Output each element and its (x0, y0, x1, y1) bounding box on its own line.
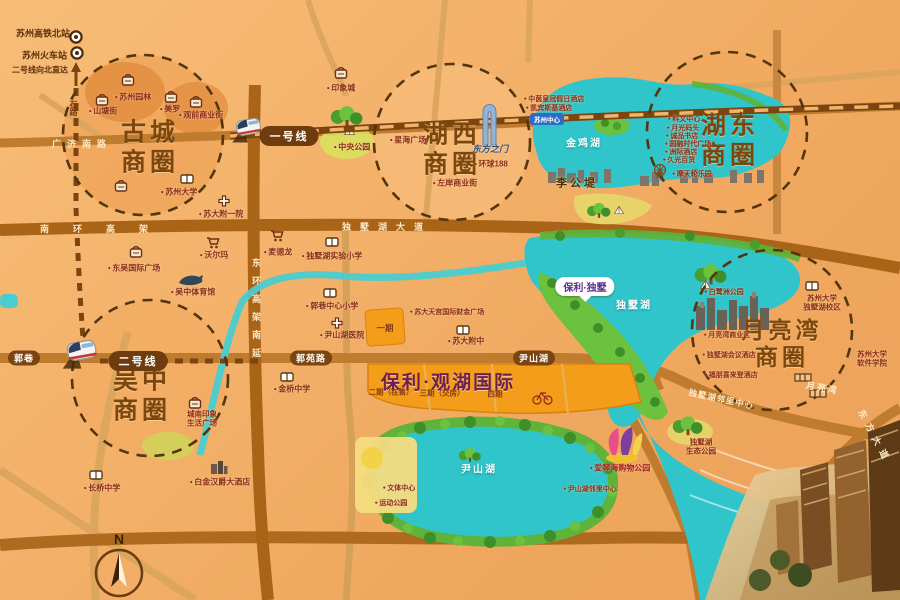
school-book-icon (181, 175, 193, 183)
line2-north-note: 二号线向北直达 (12, 65, 68, 76)
poi-guoxiang-primary: 郭巷中心小学 (306, 301, 358, 310)
poi-sports-park: 运动公园 (375, 500, 407, 508)
line2-train-icon (60, 336, 100, 372)
poi-dongwu-plaza: 东吴国际广场 (108, 263, 160, 272)
poi-harmony-times-square: 圆融时代广场 (665, 141, 711, 149)
poi-intercontinental: 洲际酒店 (665, 149, 697, 157)
north-arrow-line2 (71, 62, 81, 72)
poi-platinum-hanjue-hotel: 白金汉爵大酒店 (190, 477, 250, 486)
poi-suda-middle: 苏大附中 (448, 336, 484, 345)
poi-suzhou-center: 苏州中心 (530, 113, 564, 125)
hospital-cross-icon (219, 196, 229, 206)
poi-culture-sports-center: 文体中心 (383, 485, 415, 493)
school-book-icon (326, 238, 338, 246)
poi-yinxiang-city: 印象城 (327, 83, 355, 92)
poi-suda-dushu-campus: 苏州大学独墅湖校区 (803, 294, 841, 311)
road-dushuhudadao: 独墅湖大道 (342, 220, 432, 233)
poi-shantang-street: 山塘街 (89, 106, 117, 115)
poi-caijin-plaza: 苏大天宫国际财金广场 (410, 309, 484, 317)
metro-station-icon (71, 47, 82, 58)
compass: N (93, 531, 145, 600)
road-yinshanhu-pill: 尹山湖 (513, 351, 555, 366)
poi-global-188: 环球188 (474, 159, 508, 168)
shopping-cart-icon (271, 231, 283, 241)
poly-dushu-pin: 保利·独墅 (555, 277, 614, 296)
poi-guanqian-street: 观前商业街 (179, 110, 223, 119)
road-guoxiang-pill: 郭巷 (8, 351, 40, 366)
poi-ferris-park: 摩天轮乐园 (672, 171, 711, 179)
hospital-cross-icon (332, 318, 342, 328)
poi-kempinski: 凯宾斯基酒店 (526, 105, 572, 113)
real-estate-location-map: 苏州高铁北站 苏州火车站 二号线向北直达 一号线 二号线 石路 古城商圈 湖西商… (0, 0, 900, 600)
hotel-buildings-icon (211, 461, 228, 474)
poi-eslite-bookstore: 诚品书店 (666, 133, 698, 141)
poi-central-park: 中央公园 (334, 142, 370, 151)
poi-kewen-center: 科文中心 (668, 116, 700, 124)
road-donghuannanyan: 东环高架南延 (250, 258, 263, 366)
line2-pill: 二号线 (109, 351, 168, 371)
central-park-trees-icon (331, 106, 363, 126)
yueliangwan-circle-title: 月亮湾商圈 (742, 317, 823, 371)
school-book-icon (457, 326, 469, 334)
poi-metro-market: 麦德龙 (264, 247, 292, 256)
metro-station-icon (70, 31, 81, 42)
line1-pill: 一号线 (260, 126, 319, 146)
shop-bag-icon (131, 247, 142, 257)
road-guangjinanlu: 广济南路 (52, 137, 112, 150)
poi-gate-of-orient: 东方之门 (472, 144, 508, 154)
compass-rose-icon (93, 547, 145, 599)
poi-aegean-mall: 爱琴海购物公园 (590, 463, 650, 472)
poi-yinshan-neighborhood: 尹山湖邻里中心 (563, 486, 616, 494)
school-book-icon (90, 471, 102, 479)
poi-jinqiao-middle: 金桥中学 (274, 384, 310, 393)
road-guoyuanlu-pill: 郭苑路 (290, 351, 332, 366)
poi-meiluo: 美罗 (160, 104, 180, 113)
phase4-label: 四期 (488, 389, 503, 400)
poi-wuzhong-stadium: 吴中体育馆 (171, 287, 215, 296)
poi-eco-park: 独墅湖生态公园 (686, 438, 716, 455)
poi-suda-hospital: 苏大附一院 (199, 209, 243, 218)
poi-changqiao-middle: 长桥中学 (84, 483, 120, 492)
poi-dushu-primary: 独墅湖实验小学 (302, 251, 362, 260)
compass-n-label: N (93, 531, 145, 547)
poi-jiuguang: 久光百货 (663, 157, 695, 165)
station-north-label: 苏州高铁北站 (16, 27, 70, 40)
poi-moonlight-wharf: 月光码头 (667, 125, 699, 133)
ligongdi-label: 李公堤 (556, 178, 598, 191)
school-book-icon (281, 373, 293, 381)
poi-walmart: 沃尔玛 (200, 250, 228, 259)
poi-suda-software: 苏州大学软件学院 (857, 350, 887, 367)
phase1-label: 一期 (376, 322, 393, 334)
station-main-label: 苏州火车站 (22, 49, 67, 62)
phase2-label: 二期（在售） (369, 387, 414, 398)
stadium-whale-icon (179, 275, 203, 285)
eco-park-trees-icon (673, 416, 703, 435)
poi-chengnan-plaza: 城南印象生活广场 (187, 410, 217, 427)
poi-four-points-hotel: 福朋喜来登酒店 (704, 372, 757, 380)
school-book-icon (324, 289, 336, 297)
poi-left-bank-street: 左岸商业街 (433, 178, 477, 187)
jinji-lake-label: 金鸡湖 (566, 135, 602, 150)
gucheng-circle-title: 古城商圈 (121, 119, 179, 178)
shopping-cart-icon (207, 238, 219, 248)
school-book-icon (806, 282, 818, 290)
poi-crowne-plaza: 中茵皇冠假日酒店 (524, 96, 584, 104)
yinshan-lake-label: 尹山湖 (461, 461, 497, 476)
road-nanhuangaojia: 南环高架 (40, 222, 172, 235)
phase3-label: 三期（交房） (420, 388, 465, 399)
poi-egret-park: 白鹭洲公园 (704, 289, 743, 297)
poi-yinshan-hospital: 尹山湖医院 (320, 330, 364, 339)
poi-moonbay-biz: 月亮湾商业区 (704, 332, 750, 340)
poi-xinghai-plaza: 星海广场 (390, 135, 426, 144)
dushu-lake-label: 独墅湖 (616, 297, 652, 312)
map-canvas (0, 0, 900, 600)
poi-suzhou-university: 苏州大学 (161, 187, 197, 196)
poi-dushu-conference-hotel: 独墅湖会议酒店 (702, 352, 755, 360)
shilu-station-label: 石路 (68, 100, 79, 116)
wuzhong-circle-title: 吴中商圈 (113, 367, 171, 426)
line1-train-icon (230, 115, 264, 145)
poi-suzhou-gardens: 苏州园林 (115, 92, 151, 101)
